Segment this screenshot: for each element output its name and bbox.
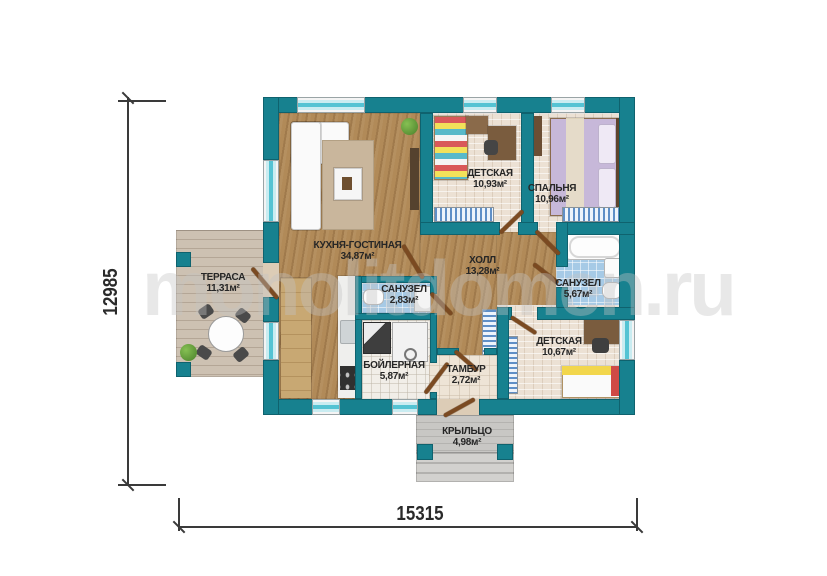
window-living-left [263,160,279,222]
radiator-children-1 [434,207,494,222]
room-area: 2,72м² [432,375,500,386]
wall-outer-left-2 [263,222,279,263]
tv-shelf [410,148,419,210]
dimension-horizontal-line [179,526,638,528]
room-area: 10,96м² [512,194,592,205]
room-area: 11,31м² [185,283,261,294]
boiler-unit [363,322,391,354]
wall-outer-left-1 [263,97,279,160]
wall-boiler-right-upper [430,313,437,363]
room-area: 4,98м² [428,437,506,448]
room-area: 5,67м² [543,289,613,300]
dimension-vertical-line [127,97,129,486]
kitchen-counter [281,278,311,398]
wall-tambour-top-right [484,348,497,355]
room-name: БОЙЛЕРНАЯ [358,360,430,371]
room-name: ХОЛЛ [445,255,520,266]
room-area: 5,87м² [358,371,430,382]
wall-row-a [420,222,500,235]
bathtub-inner [569,236,621,258]
dimension-vertical-ext-top [118,100,166,102]
terrace-table [208,316,244,352]
cabinet-children-1 [466,116,488,134]
coffee-table-top [342,177,352,190]
bed-pillow-1 [598,124,616,164]
sofa-chaise [291,122,321,230]
wall-row-c [558,222,635,235]
window-living-top [297,97,365,113]
room-area: 10,67м² [520,347,598,358]
wall-outer-left-3 [263,297,279,322]
window-kitchen-left [263,322,279,360]
wall-bathbig-left-upper [556,222,568,267]
wall-children1-left [420,113,433,235]
window-boiler-bottom [392,399,418,415]
room-label-bedroom: СПАЛЬНЯ 10,96м² [512,183,592,205]
room-label-kitchen-living: КУХНЯ-ГОСТИНАЯ 34,87м² [300,240,415,262]
bed-pillow-2 [598,168,616,208]
terrace-post-bottom [176,362,191,377]
wall-children2-top-right [537,307,635,320]
wall-outer-left-4 [263,360,279,415]
wall-outer-right-2 [619,360,635,415]
dimension-width-label: 15315 [386,503,454,523]
room-name: КРЫЛЬЦО [428,426,506,437]
floor-plan-canvas: monolitdomen.ru КУХНЯ-ГОСТИНАЯ 34,87м² Д… [0,0,827,576]
room-area: 2,83м² [368,295,440,306]
room-name: ТАМБУР [432,364,500,375]
room-label-boiler: БОЙЛЕРНАЯ 5,87м² [358,360,430,382]
wall-boiler-right-pier [430,392,437,399]
wall-outer-right-1 [619,97,635,320]
room-label-terrace: ТЕРРАСА 11,31м² [185,272,261,294]
room-label-bathroom-small: САНУЗЕЛ 2,83м² [368,284,440,306]
room-area: 13,28м² [445,266,520,277]
window-children1-top [463,97,497,113]
room-label-porch: КРЫЛЬЦО 4,98м² [428,426,506,448]
dimension-height-label: 12985 [100,258,120,326]
radiator-bedroom [562,207,620,222]
window-kitchen-bottom [312,399,340,415]
room-name: ДЕТСКАЯ [520,336,598,347]
terrace-post-top [176,252,191,267]
room-name: ДЕТСКАЯ [450,168,530,179]
room-label-tambour: ТАМБУР 2,72м² [432,364,500,386]
wall-outer-bottom-right [479,399,635,415]
wall-bathsmall-top [355,276,437,283]
wall-bathsmall-bottom [355,313,437,320]
chair-children-1 [484,140,498,155]
window-bedroom-top [551,97,585,113]
plant-terrace-icon [180,344,197,361]
room-name: КУХНЯ-ГОСТИНАЯ [300,240,415,251]
room-name: СПАЛЬНЯ [512,183,592,194]
plant-living-icon [401,118,418,135]
room-label-hall: ХОЛЛ 13,28м² [445,255,520,277]
window-children2-right [619,320,635,360]
room-area: 34,87м² [300,251,415,262]
room-name: САНУЗЕЛ [368,284,440,295]
room-label-children-2: ДЕТСКАЯ 10,67м² [520,336,598,358]
room-name: САНУЗЕЛ [543,278,613,289]
room-name: ТЕРРАСА [185,272,261,283]
room-label-bathroom-big: САНУЗЕЛ 5,67м² [543,278,613,300]
